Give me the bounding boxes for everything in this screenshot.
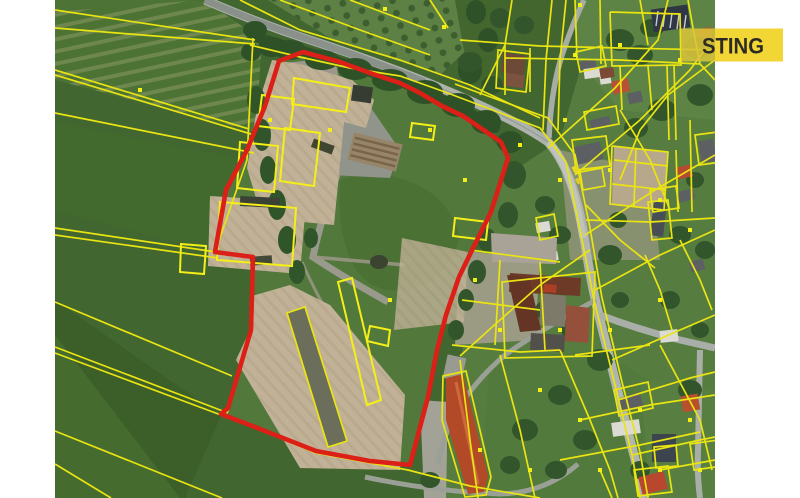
svg-text:STING: STING (702, 34, 764, 59)
